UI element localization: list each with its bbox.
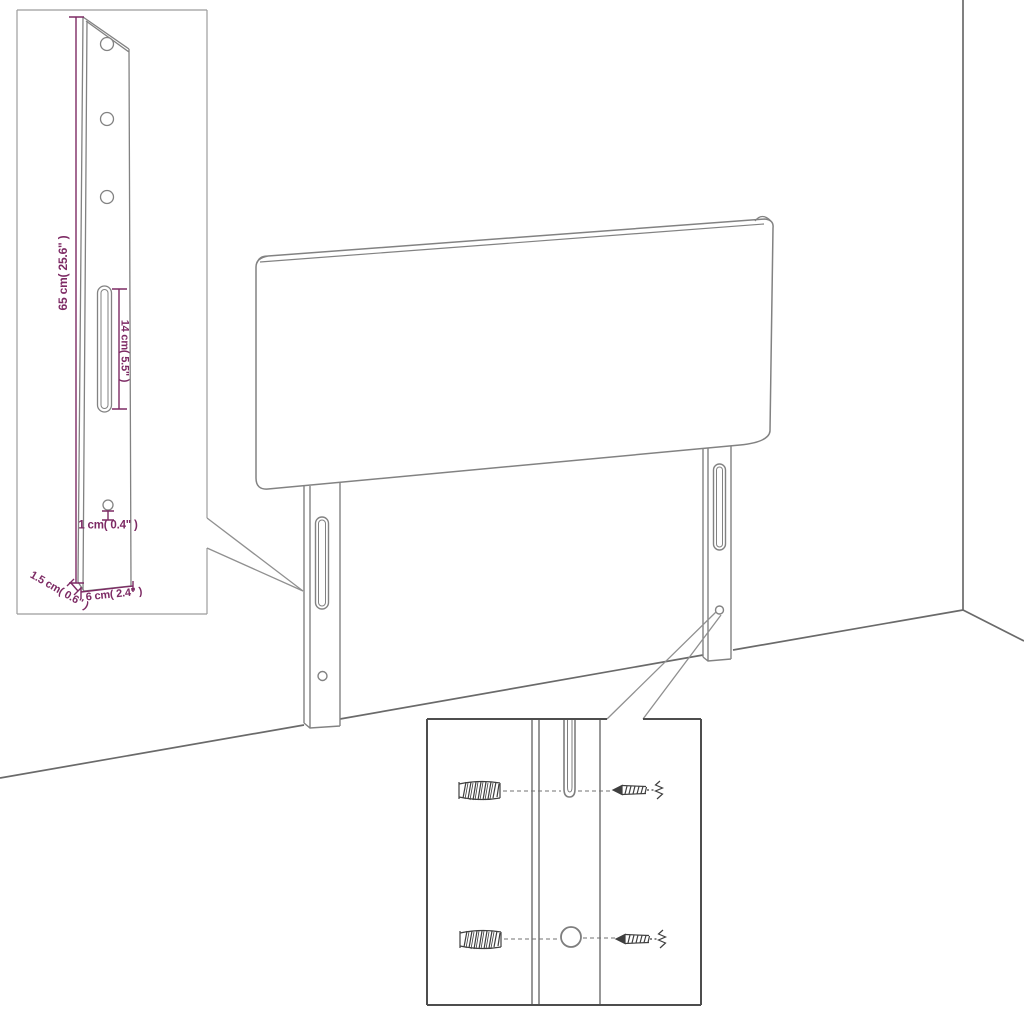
inset-slot-inner [568, 720, 573, 792]
headboard-outline [256, 219, 773, 489]
leg-left-slot [316, 517, 329, 609]
screws [613, 781, 666, 948]
headboard-panel [256, 217, 773, 490]
headboard-leg-right [703, 446, 731, 661]
dimension-label-bar-height: 65 cm( 25.6" ) [57, 236, 69, 311]
inset-leg-edges [532, 720, 600, 1004]
inset-leg-strip [532, 720, 600, 1004]
leg-left-hole [318, 672, 327, 681]
headboard-leg-left [304, 483, 340, 728]
dimension-label-hole-diameter: 1 cm( 0.4" ) [78, 520, 137, 532]
screw-top [613, 781, 663, 799]
callout-lines-left [207, 518, 303, 591]
dimension-label-slot-length: 14 cm( 5.5" ) [119, 320, 130, 383]
bracket-hole-3 [101, 191, 114, 204]
bracket-hole-2 [101, 113, 114, 126]
bracket-detail [78, 17, 131, 591]
diagram-stage: 65 cm( 25.6" ) 14 cm( 5.5" ) 1 cm( 0.4" … [0, 0, 1024, 1024]
floor-line-right [963, 610, 1024, 641]
leg-right-slot [714, 464, 726, 550]
screw-bottom [616, 930, 666, 948]
leg-right-hole [716, 606, 724, 614]
leader-dashed-lines [503, 791, 615, 939]
bracket-small-hole [103, 500, 113, 510]
callout-line-right-upper [607, 612, 716, 719]
inset-slot [564, 720, 575, 797]
bracket-hole-1 [101, 38, 114, 51]
callout-lines-right [607, 612, 721, 719]
callout-line-right-lower [643, 615, 721, 719]
floor-line-left [0, 610, 963, 778]
assembly-diagram [0, 0, 1024, 1024]
bracket-slot [98, 286, 112, 412]
wall-plugs [459, 781, 501, 949]
wall-plug-top [459, 781, 500, 800]
wall-plug-bottom [460, 930, 501, 949]
inset-hole [561, 927, 581, 947]
